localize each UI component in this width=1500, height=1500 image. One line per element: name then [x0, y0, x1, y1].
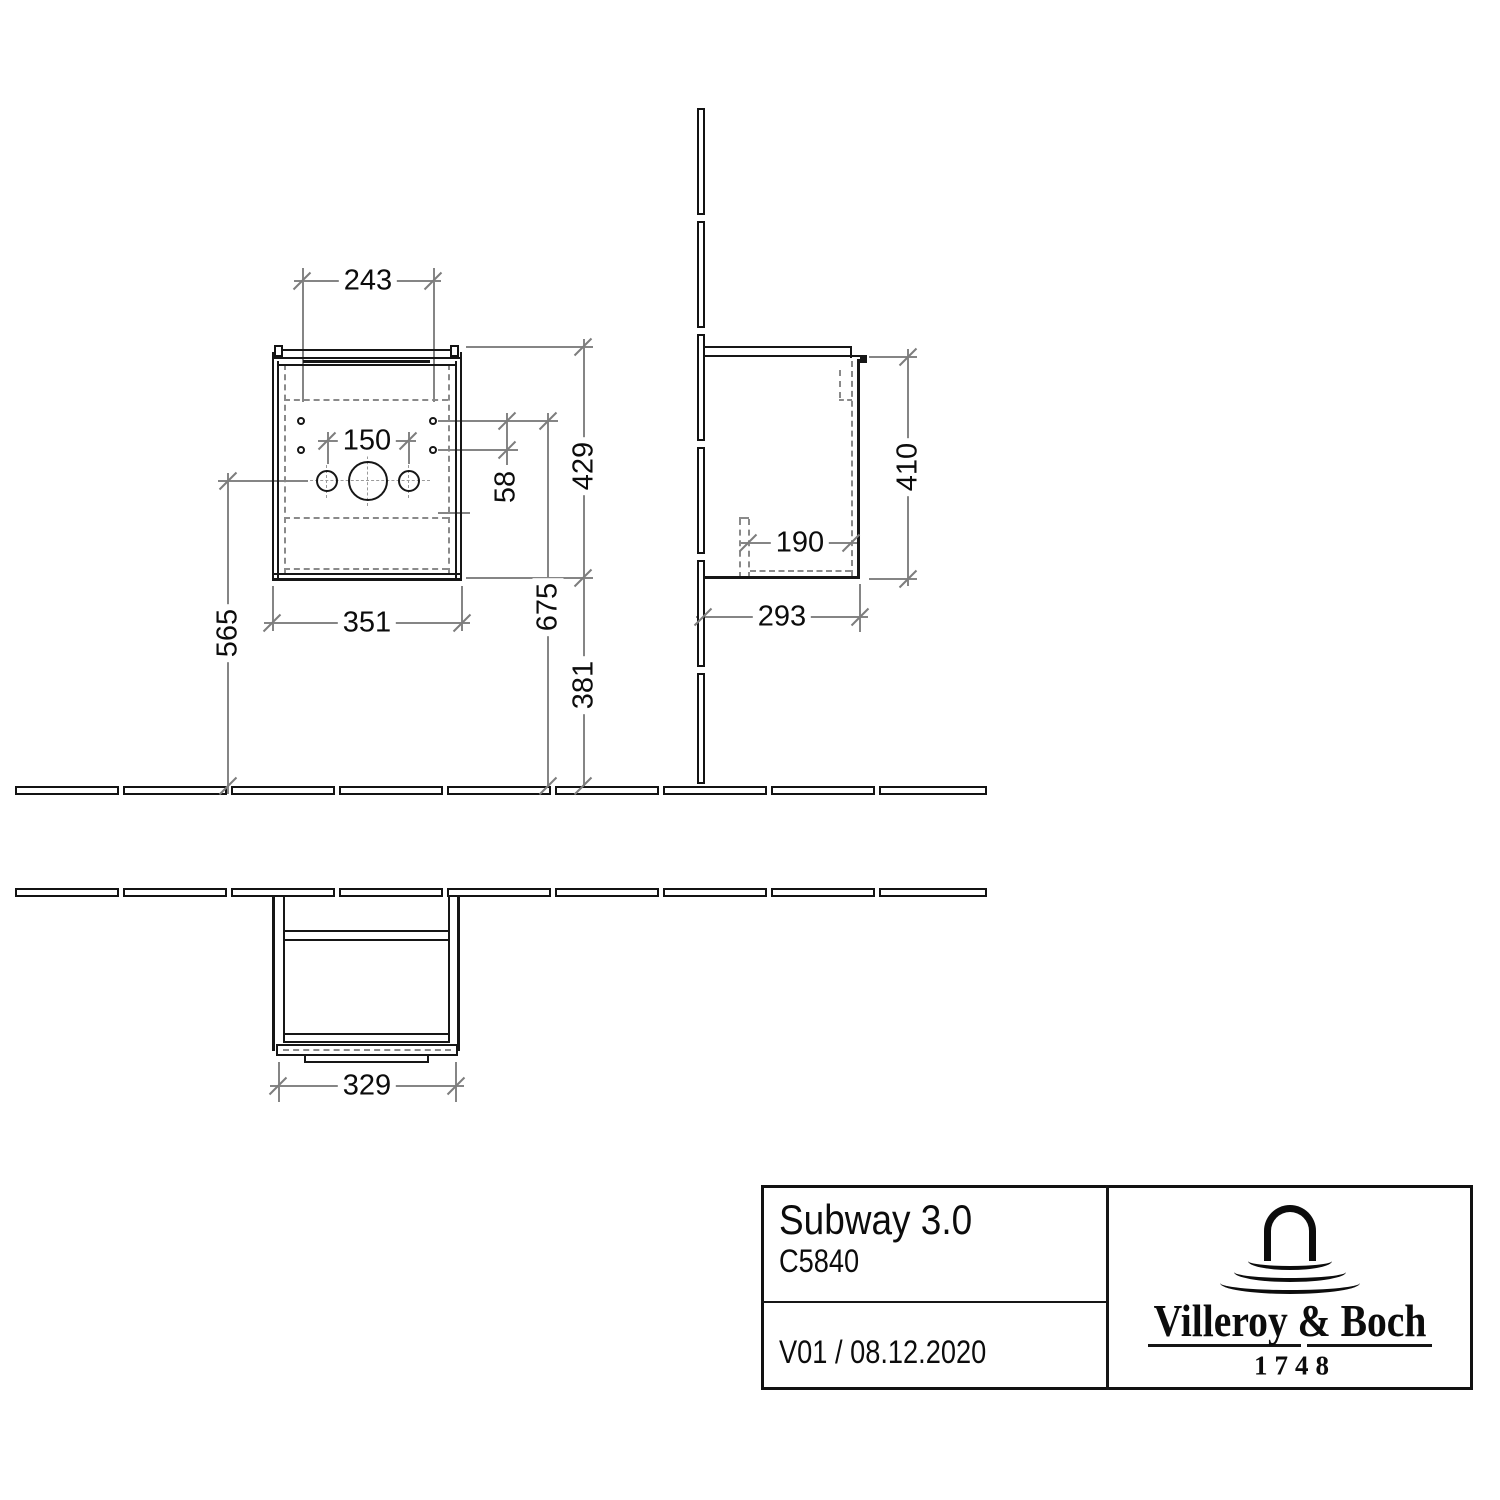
extension-line — [859, 584, 861, 632]
side-panel-line — [448, 895, 450, 1043]
handle-strip — [304, 1061, 429, 1063]
bottom-line — [272, 578, 462, 581]
carcass-front-line — [285, 1041, 448, 1043]
floor-segment — [879, 786, 987, 795]
fixing-hole — [297, 417, 305, 425]
floor-segment — [15, 786, 119, 795]
dashed-line — [284, 399, 448, 401]
brand-year: 1748 — [1254, 1351, 1336, 1382]
dim-siphon-offset: 190 — [771, 528, 829, 559]
fixing-hole — [297, 446, 305, 454]
brand-wordmark: Villeroy & Boch — [1154, 1295, 1427, 1347]
wall-segment — [123, 888, 227, 897]
product-series: Subway 3.0 — [779, 1196, 972, 1244]
floor-segment — [123, 786, 227, 795]
floor-segment — [339, 786, 443, 795]
extension-line — [455, 1062, 457, 1102]
mounting-tab — [274, 345, 283, 357]
side-panel-line — [272, 895, 275, 1051]
back-panel-line — [285, 939, 448, 941]
extension-line — [218, 480, 308, 482]
dimension-line — [583, 339, 585, 794]
door-edge — [456, 1044, 458, 1056]
water-arc-icon — [1220, 1272, 1360, 1294]
wall-segment — [697, 334, 705, 441]
side-panel-line — [455, 361, 457, 581]
wall-segment — [15, 888, 119, 897]
door-edge — [276, 1044, 278, 1056]
carcass-front-line — [285, 1033, 448, 1035]
pipe-cutout-small — [316, 470, 338, 492]
door-dashed-line — [283, 1049, 451, 1051]
bottom-line — [272, 573, 462, 575]
dim-siphon-height: 565 — [213, 604, 244, 662]
top-panel-line — [704, 346, 852, 348]
mounting-tab — [450, 345, 459, 357]
side-panel-line — [272, 352, 274, 581]
wall-segment — [697, 221, 705, 328]
siphon-dashed-line — [739, 517, 749, 519]
wall-segment — [697, 447, 705, 554]
dashed-line — [284, 568, 448, 570]
wall-segment — [447, 888, 551, 897]
top-panel-line — [704, 355, 867, 357]
wall-segment — [339, 888, 443, 897]
wall-segment — [663, 888, 767, 897]
wall-segment — [697, 673, 705, 784]
pipe-cutout-small — [398, 470, 420, 492]
dim-width: 351 — [338, 608, 396, 639]
extension-line — [466, 346, 593, 348]
floor-segment — [771, 786, 875, 795]
title-block-divider-horizontal — [761, 1301, 1109, 1303]
extension-line — [272, 586, 274, 631]
floor-segment — [231, 786, 335, 795]
wall-segment — [697, 108, 705, 215]
door-line — [276, 1044, 458, 1046]
handle-dashed-profile — [839, 399, 852, 401]
dim-hole-spacing-vertical: 58 — [491, 466, 522, 508]
line — [283, 349, 452, 351]
floor-segment — [447, 786, 551, 795]
fixing-hole — [429, 446, 437, 454]
dim-hole-spacing-horizontal: 243 — [339, 266, 397, 297]
fixing-hole — [429, 417, 437, 425]
dashed-line — [448, 364, 450, 574]
extension-line — [433, 268, 435, 402]
line — [272, 357, 462, 359]
dim-height-overall: 429 — [569, 437, 600, 495]
dashed-line — [284, 517, 448, 519]
line — [278, 364, 457, 366]
side-panel-line — [283, 895, 285, 1043]
wall-segment — [771, 888, 875, 897]
floor-segment — [663, 786, 767, 795]
dashed-line — [284, 364, 286, 574]
technical-drawing-sheet: 243 150 58 429 381 675 565 — [0, 0, 1500, 1500]
title-block-divider-vertical — [1106, 1185, 1109, 1390]
side-panel-line — [457, 895, 460, 1051]
extension-line — [466, 577, 593, 579]
dim-front-width: 329 — [338, 1071, 396, 1102]
dim-depth: 293 — [753, 602, 811, 633]
extension-line — [302, 268, 304, 402]
floor-segment — [555, 786, 659, 795]
side-panel-line — [460, 352, 462, 581]
front-lip — [860, 355, 867, 363]
handle-groove — [303, 360, 430, 363]
edge-mark — [438, 512, 470, 514]
dim-tap-hole-spacing: 150 — [338, 426, 396, 457]
handle-dashed-profile — [839, 370, 841, 398]
version-date: V01 / 08.12.2020 — [779, 1334, 986, 1371]
side-panel-line — [277, 361, 279, 581]
siphon-dashed-line — [748, 519, 750, 578]
siphon-cutout-large — [348, 461, 388, 501]
dim-bottom-height: 381 — [569, 656, 600, 714]
dim-upper-holes-height: 675 — [533, 578, 564, 636]
front-edge-line — [857, 359, 860, 579]
dashed-line — [750, 570, 851, 572]
dim-height: 410 — [893, 438, 924, 496]
bottom-line — [703, 576, 860, 579]
wall-segment — [879, 888, 987, 897]
wall-segment — [555, 888, 659, 897]
article-number: C5840 — [779, 1243, 859, 1280]
back-panel-line — [285, 930, 448, 932]
